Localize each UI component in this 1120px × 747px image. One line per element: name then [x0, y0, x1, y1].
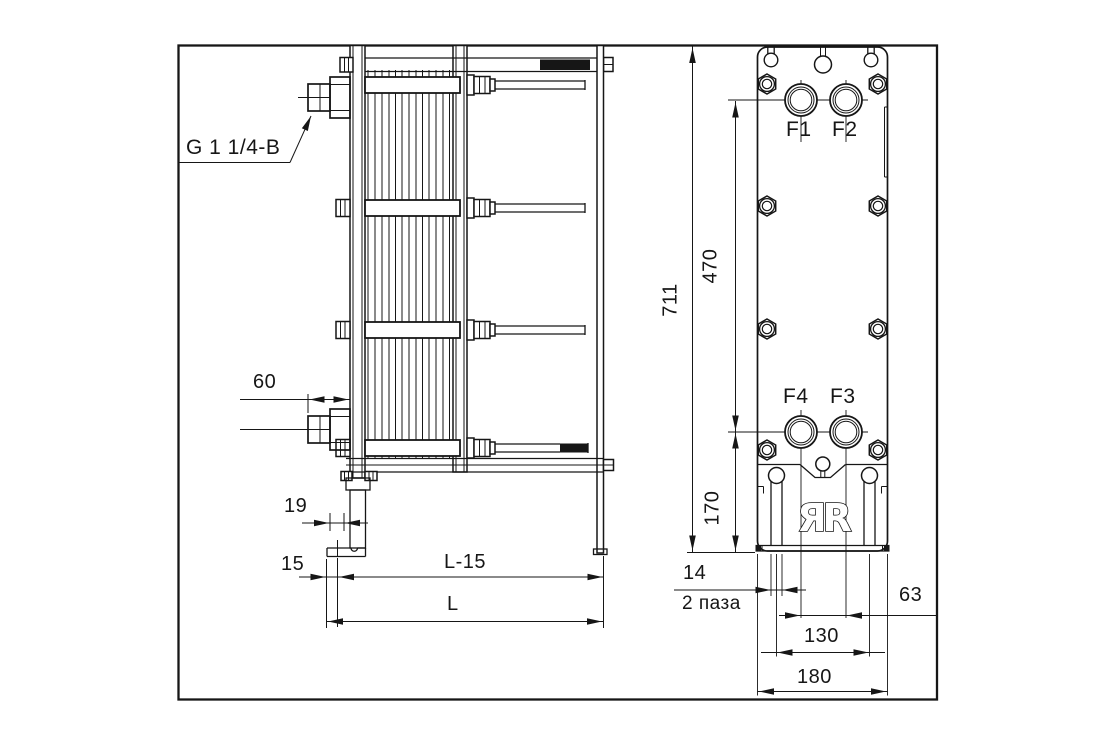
dim-L15-label: L-15: [444, 551, 486, 574]
nut: [758, 440, 775, 460]
tie-bolt-row-3: [336, 320, 585, 340]
nut: [758, 74, 775, 94]
hanging-slot-right: [864, 47, 878, 67]
dim-470-label: 470: [700, 249, 723, 284]
dim-15-label: 15: [281, 553, 304, 576]
port-f2: [830, 84, 862, 116]
top-carrying-bar: [340, 58, 613, 73]
drawing-canvas: ЯR: [0, 0, 1120, 747]
drawing-frame: [179, 46, 938, 700]
ridan-logo: ЯR: [797, 496, 851, 540]
bottom-carrying-bar: [341, 459, 614, 481]
port-f3-label: F3: [830, 385, 856, 409]
plate-pack: [368, 70, 450, 458]
dim-170-label: 170: [702, 491, 725, 526]
technical-drawing-page: ЯR: [0, 0, 1120, 747]
dim-19: [302, 513, 368, 531]
tie-bolt-row-2: [336, 198, 585, 218]
nut: [869, 440, 886, 460]
dim-711-label: 711: [660, 283, 683, 316]
nut: [758, 196, 775, 216]
nut: [869, 319, 886, 339]
rear-support-column: [594, 46, 608, 555]
slot-count-note: 2 паза: [682, 593, 741, 615]
fixed-plate: [350, 46, 365, 479]
port-f3: [830, 416, 862, 448]
hanging-slot-left: [764, 47, 778, 67]
support-foot: [327, 478, 370, 557]
dim-180-label: 180: [797, 666, 832, 689]
top-center-hole: [815, 47, 832, 73]
port-f1-label: F1: [786, 118, 812, 142]
port-f1: [785, 84, 817, 116]
nut: [869, 196, 886, 216]
dim-L-label: L: [447, 593, 459, 616]
tie-bolt-row-1: [365, 75, 585, 95]
port-f2-label: F2: [832, 118, 858, 142]
port-f4-label: F4: [783, 385, 809, 409]
dim-60: [240, 394, 350, 413]
dim-130-label: 130: [804, 625, 839, 648]
dim-60-label: 60: [253, 371, 276, 394]
dim-711: [687, 47, 755, 553]
dim-63-label: 63: [899, 584, 922, 607]
nut: [758, 319, 775, 339]
dim-14-label: 14: [683, 562, 706, 585]
pipe-connection-top: [298, 77, 350, 118]
thread-callout-label: G 1 1/4-B: [186, 136, 280, 160]
nut: [869, 74, 886, 94]
dim-19-label: 19: [284, 495, 307, 518]
port-f4: [785, 416, 817, 448]
side-view: [179, 46, 614, 629]
pipe-connection-bottom: [240, 409, 350, 450]
pressure-plate: [453, 46, 467, 473]
